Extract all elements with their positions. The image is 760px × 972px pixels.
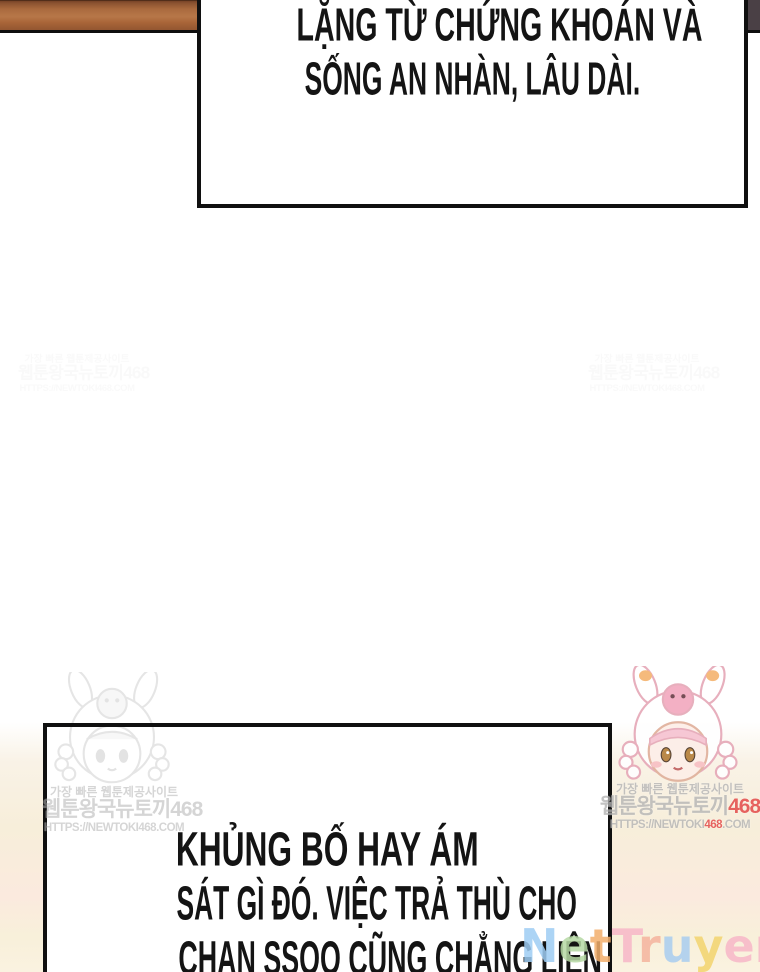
comic-page: LẶNG TỪ CHỨNG KHOÁN VÀSỐNG AN NHÀN, LÂU … [0, 0, 760, 972]
wood-shelf-artwork [0, 0, 198, 33]
logo-letter: y [693, 919, 723, 972]
speech-text-line: LẶNG TỪ CHỨNG KHOÁN VÀ [201, 2, 744, 48]
watermark-newtoki-bottom-right: 가장 빠른 웹툰제공사이트웹툰왕국뉴토끼468HTTPS://NEWTOKI46… [594, 783, 760, 831]
watermark-line: 웹툰왕국뉴토끼468 [588, 365, 706, 384]
watermark-line: HTTPS://NEWTOKI468.COM [18, 383, 136, 393]
watermark-line: HTTPS://NEWTOKI468.COM [588, 383, 706, 393]
logo-letter: T [612, 919, 638, 972]
logo-letter: r [638, 919, 661, 972]
logo-letter: t [590, 919, 612, 972]
watermark-line: HTTPS://NEWTOKI468.COM [42, 822, 186, 834]
speech-text-line: SỐNG AN NHÀN, LÂU DÀI. [201, 56, 744, 102]
watermark-line: 웹툰왕국뉴토끼468 [18, 365, 136, 384]
speech-bubble-top: LẶNG TỪ CHỨNG KHOÁN VÀSỐNG AN NHÀN, LÂU … [197, 0, 748, 208]
watermark-line: 웹툰왕국뉴토끼468 [594, 796, 760, 819]
logo-letter: u [661, 919, 694, 972]
nettruyen-logo: NetTruyen1905 [520, 919, 760, 972]
logo-letter: N [520, 919, 559, 972]
logo-letter: e [723, 919, 754, 972]
logo-letter: e [559, 919, 590, 972]
watermark-line: 웹툰왕국뉴토끼468 [42, 799, 186, 822]
watermark-newtoki-mid-right: 가장 빠른 웹툰제공사이트웹툰왕국뉴토끼468HTTPS://NEWTOKI46… [588, 354, 706, 393]
watermark-line: HTTPS://NEWTOKI468.COM [594, 819, 760, 831]
watermark-newtoki-mid-left: 가장 빠른 웹툰제공사이트웹툰왕국뉴토끼468HTTPS://NEWTOKI46… [18, 354, 136, 393]
watermark-newtoki-bottom-left: 가장 빠른 웹툰제공사이트웹툰왕국뉴토끼468HTTPS://NEWTOKI46… [42, 786, 186, 834]
logo-letter: n [755, 919, 760, 972]
